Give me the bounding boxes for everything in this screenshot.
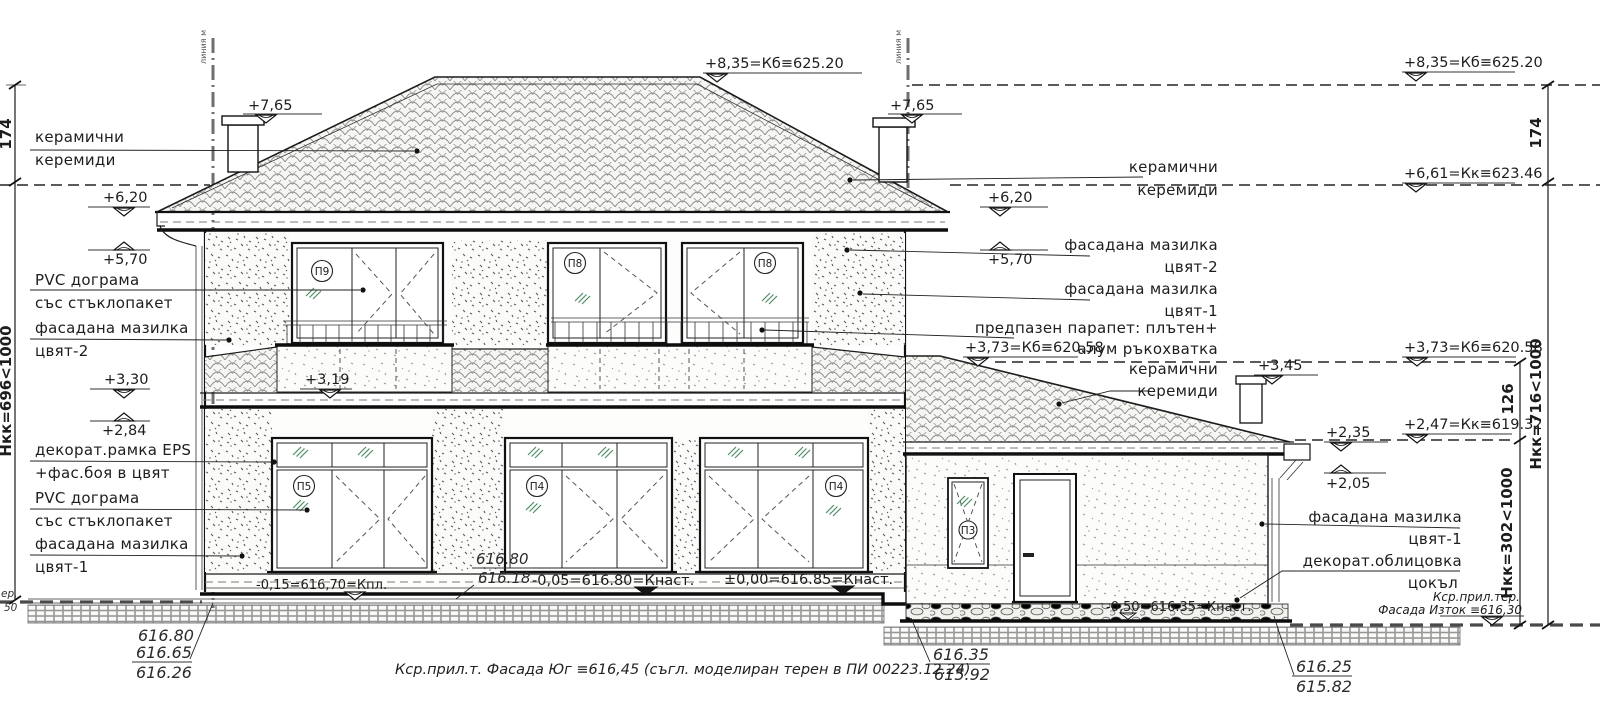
- dim-hkk-annex: Нкк=302<1000: [1498, 467, 1516, 598]
- balcony-parapet-left: [277, 345, 452, 392]
- pent-roof-tiles: [812, 347, 905, 392]
- label-plinth-1: декорат.облицовка: [1303, 552, 1462, 570]
- note-east-terrain-2: Фасада Изток ≡616,30: [1378, 603, 1522, 617]
- label-annex-tiles-1: керамични: [1129, 360, 1218, 378]
- level-620-left: +6,20: [103, 190, 147, 206]
- window-tag-label: П4: [530, 481, 545, 493]
- dim-126: 126: [1499, 383, 1517, 414]
- drawing-title-note: Кср.прил.т. Фасада Юг ≡616,45 (съгл. мод…: [395, 662, 970, 678]
- level-flag-icon: [114, 208, 134, 216]
- plaster-accent: [205, 233, 290, 345]
- level-m015: -0,15=616,70=Кпл.: [256, 578, 387, 593]
- level-661: +6,61=Кк≡623.46: [1404, 166, 1543, 182]
- note-west-fragment-1: ер.: [1, 588, 17, 600]
- window-p3: П3: [948, 478, 988, 568]
- level-570-left: +5,70: [103, 252, 147, 268]
- downpipe-right: [1280, 460, 1303, 480]
- label-r-plaster2-1: фасадана мазилка: [1064, 236, 1218, 254]
- label-eps-frame-2: +фас.боя в цвят: [35, 464, 170, 482]
- level-330: +3,30: [104, 372, 148, 388]
- label-r-plaster1-2: цвят-1: [1164, 302, 1218, 320]
- plaster-accent: [868, 409, 905, 572]
- dim-174-right: 174: [1527, 117, 1545, 148]
- window-tag-label: П9: [315, 266, 330, 278]
- level-flag-icon: [707, 74, 727, 82]
- level-flag-icon: [1406, 73, 1426, 81]
- ground-right-red: 616.25: [1296, 657, 1352, 676]
- plaster-accent: [432, 409, 505, 572]
- window-tag-label: П8: [758, 258, 773, 270]
- plaster-accent: [205, 409, 272, 572]
- label-r-plaster1-1: фасадана мазилка: [1064, 280, 1218, 298]
- pavement-strip-right: [884, 627, 1460, 645]
- level-247: +2,47=Кк≡619.32: [1404, 417, 1543, 433]
- label-pvc-gf-2: със стъклопакет: [35, 512, 173, 530]
- entry-door: [1012, 474, 1078, 602]
- facade-drawing-page: линия м линия м: [0, 0, 1600, 701]
- facade-south-elevation: линия м линия м: [0, 0, 1600, 701]
- label-pvc-1: PVC дограма: [35, 271, 140, 289]
- window-p4b: П4: [695, 438, 873, 572]
- level-284: +2,84: [102, 423, 146, 439]
- regulation-line-label-left: линия м: [199, 30, 208, 64]
- level-835-center: +8,35=Кб≡625.20: [705, 56, 844, 72]
- label-pvc-2: със стъклопакет: [35, 294, 173, 312]
- level-flag-icon: [114, 242, 134, 250]
- main-house: П9 П8 П8: [155, 77, 950, 604]
- label-ceramic-tiles-2: керемиди: [35, 151, 116, 169]
- annex: П3: [900, 356, 1310, 621]
- level-765-right: +7,65: [890, 98, 934, 114]
- level-flag-icon: [990, 242, 1010, 250]
- window-tag-label: П5: [297, 481, 312, 493]
- level-flag-icon: [114, 413, 134, 421]
- dim-hkk-main: Нкк=696<1000: [0, 325, 15, 456]
- level-345: +3,45: [1258, 358, 1302, 374]
- ground-center-red: 616.80: [476, 550, 529, 568]
- ground-left-red2: 616.65: [136, 643, 192, 662]
- window-p9: П9: [292, 243, 443, 343]
- note-east-terrain-1: Кср.прил.тер.: [1433, 590, 1520, 604]
- label-eps-frame-1: декорат.рамка EPS: [35, 441, 191, 459]
- gutter-right: [1284, 444, 1310, 460]
- label-r-tiles-1: керамични: [1129, 158, 1218, 176]
- balcony-parapet-right: [548, 345, 812, 392]
- level-flag-icon: [114, 390, 134, 398]
- level-flag-icon: [1331, 465, 1351, 473]
- regulation-line-label-right: линия м: [894, 30, 903, 64]
- label-ceramic-tiles-1: керамични: [35, 128, 124, 146]
- ground-right-black: 615.82: [1296, 677, 1352, 696]
- level-620-right: +6,20: [988, 190, 1032, 206]
- level-flag-icon: [1406, 184, 1426, 192]
- level-835-right: +8,35=Кб≡625.20: [1404, 55, 1543, 71]
- pent-roof-tiles: [452, 349, 548, 392]
- level-m005: -0,05=616.80=Кнаст.: [532, 573, 694, 589]
- label-annex-plaster-1: фасадана мазилка: [1308, 508, 1462, 526]
- door-handle: [1023, 553, 1034, 557]
- level-flag-icon: [1407, 435, 1427, 443]
- window-tag-label: П4: [829, 481, 844, 493]
- label-r-tiles-2: керемиди: [1137, 181, 1218, 199]
- level-373-right: +3,73=Кб≡620.58: [1404, 340, 1543, 356]
- label-plaster2-2: цвят-2: [35, 342, 89, 360]
- dim-hkk-right: Нкк=716<1000: [1527, 338, 1545, 469]
- level-319: +3,19: [305, 372, 349, 388]
- level-000: ±0,00=616.85=Кнаст.: [724, 572, 893, 588]
- ground-center-black: 616.18: [478, 569, 531, 587]
- label-parapet-1: предпазен парапет: плътен+: [975, 319, 1218, 337]
- window-p5: П5: [267, 438, 437, 572]
- label-plaster2-1: фасадана мазилка: [35, 319, 189, 337]
- level-205: +2,05: [1326, 476, 1370, 492]
- annex-roof: [906, 356, 1290, 442]
- level-flag-icon: [990, 208, 1010, 216]
- plaster-accent: [672, 440, 700, 572]
- window-p8b: П8: [682, 243, 803, 343]
- dim-174-left: 174: [0, 118, 15, 149]
- plaster-accent: [452, 240, 548, 345]
- level-m050: -0,50=616.35=Кнаст.: [1106, 600, 1251, 615]
- level-765-left: +7,65: [248, 98, 292, 114]
- pavement-strip-left: [28, 605, 884, 623]
- chimney-left: [222, 116, 264, 172]
- label-plaster1-left-1: фасадана мазилка: [35, 535, 189, 553]
- level-235: +2,35: [1326, 425, 1370, 441]
- level-flag-icon: [1331, 443, 1351, 451]
- label-parapet-2: алум ръкохватка: [1078, 340, 1219, 358]
- window-p8a: П8: [548, 243, 666, 343]
- ground-left-black: 616.26: [136, 663, 192, 682]
- terrain: [0, 599, 1600, 645]
- window-tag-label: П3: [961, 525, 976, 537]
- level-flag-icon: [320, 390, 340, 398]
- label-annex-plaster-2: цвят-1: [1408, 530, 1462, 548]
- label-pvc-gf-1: PVC дограма: [35, 489, 140, 507]
- note-west-fragment-2: 50: [4, 602, 18, 614]
- label-plaster1-left-2: цвят-1: [35, 558, 89, 576]
- window-tag-label: П8: [568, 258, 583, 270]
- annex-chimney: [1236, 376, 1266, 423]
- pent-roof-tiles: [205, 347, 277, 392]
- label-r-plaster2-2: цвят-2: [1164, 258, 1218, 276]
